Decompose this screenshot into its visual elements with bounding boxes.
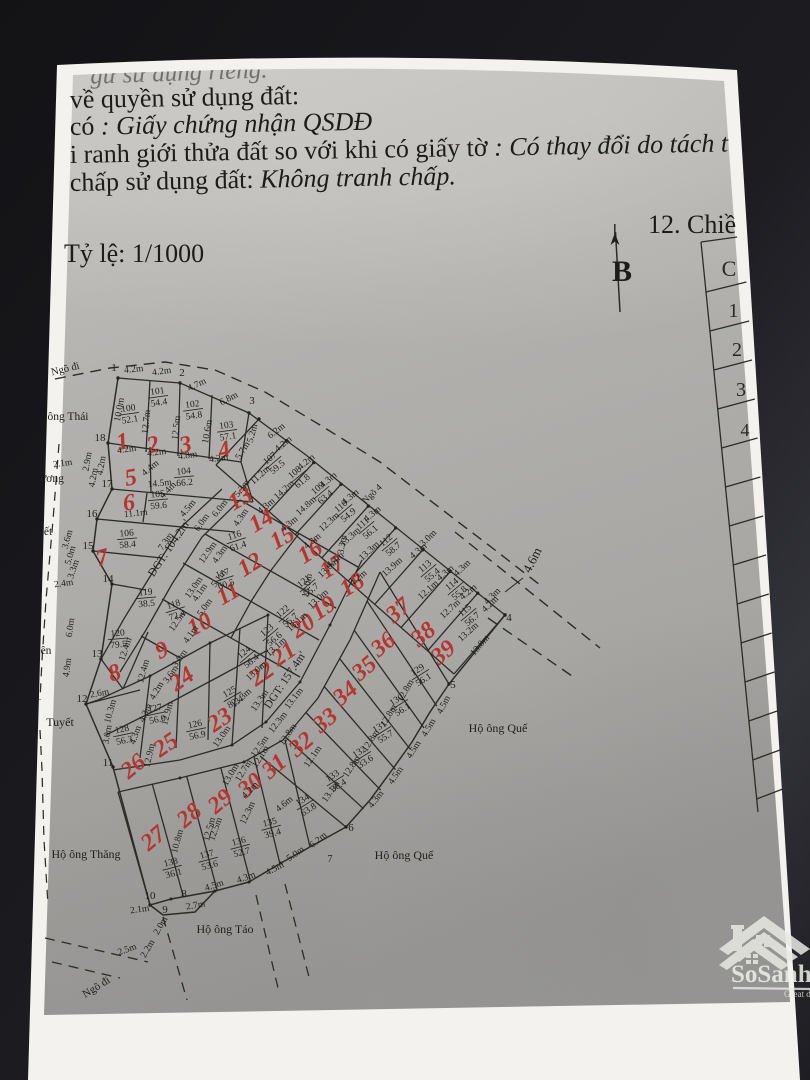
svg-text:2: 2 [179, 367, 185, 379]
svg-text:SoSanhnh: SoSanhnh [731, 961, 810, 988]
svg-text:C: C [722, 256, 737, 281]
svg-text:ết: ết [44, 525, 53, 538]
svg-text:ông Thái: ông Thái [48, 411, 89, 423]
svg-text:6: 6 [348, 822, 354, 834]
svg-text:3: 3 [736, 379, 746, 401]
svg-text:Hộ ông Thăng: Hộ ông Thăng [51, 847, 120, 861]
svg-text:38.5: 38.5 [138, 599, 156, 610]
svg-text:ên: ên [41, 645, 52, 657]
svg-text:59.6: 59.6 [150, 501, 168, 512]
svg-text:8: 8 [181, 888, 187, 900]
svg-text:1: 1 [111, 362, 117, 374]
svg-text:Hộ ông Quế: Hộ ông Quế [375, 848, 434, 862]
svg-text:4: 4 [506, 612, 512, 624]
svg-text:1: 1 [729, 300, 739, 322]
svg-text:4.2m: 4.2m [124, 364, 145, 376]
svg-text:10: 10 [145, 890, 157, 902]
svg-text:Tỷ lệ: 1/1000: Tỷ lệ: 1/1000 [64, 239, 204, 268]
svg-text:9: 9 [162, 904, 168, 916]
svg-text:4: 4 [741, 420, 750, 440]
svg-text:Hộ ông Quế: Hộ ông Quế [469, 721, 528, 735]
svg-text:18: 18 [95, 432, 107, 444]
svg-text:ương: ương [40, 473, 64, 485]
svg-text:Great de: Great de [784, 989, 810, 999]
svg-text:3: 3 [249, 395, 255, 407]
svg-text:12. Chiề: 12. Chiề [648, 210, 736, 239]
svg-text:B: B [612, 255, 632, 288]
svg-text:Tuyết: Tuyết [46, 715, 74, 729]
svg-text:58.4: 58.4 [119, 540, 137, 551]
svg-text:7: 7 [328, 854, 333, 865]
svg-text:Hộ ông Táo: Hộ ông Táo [196, 922, 253, 936]
svg-text:2: 2 [732, 339, 742, 361]
svg-text:5: 5 [450, 679, 456, 691]
